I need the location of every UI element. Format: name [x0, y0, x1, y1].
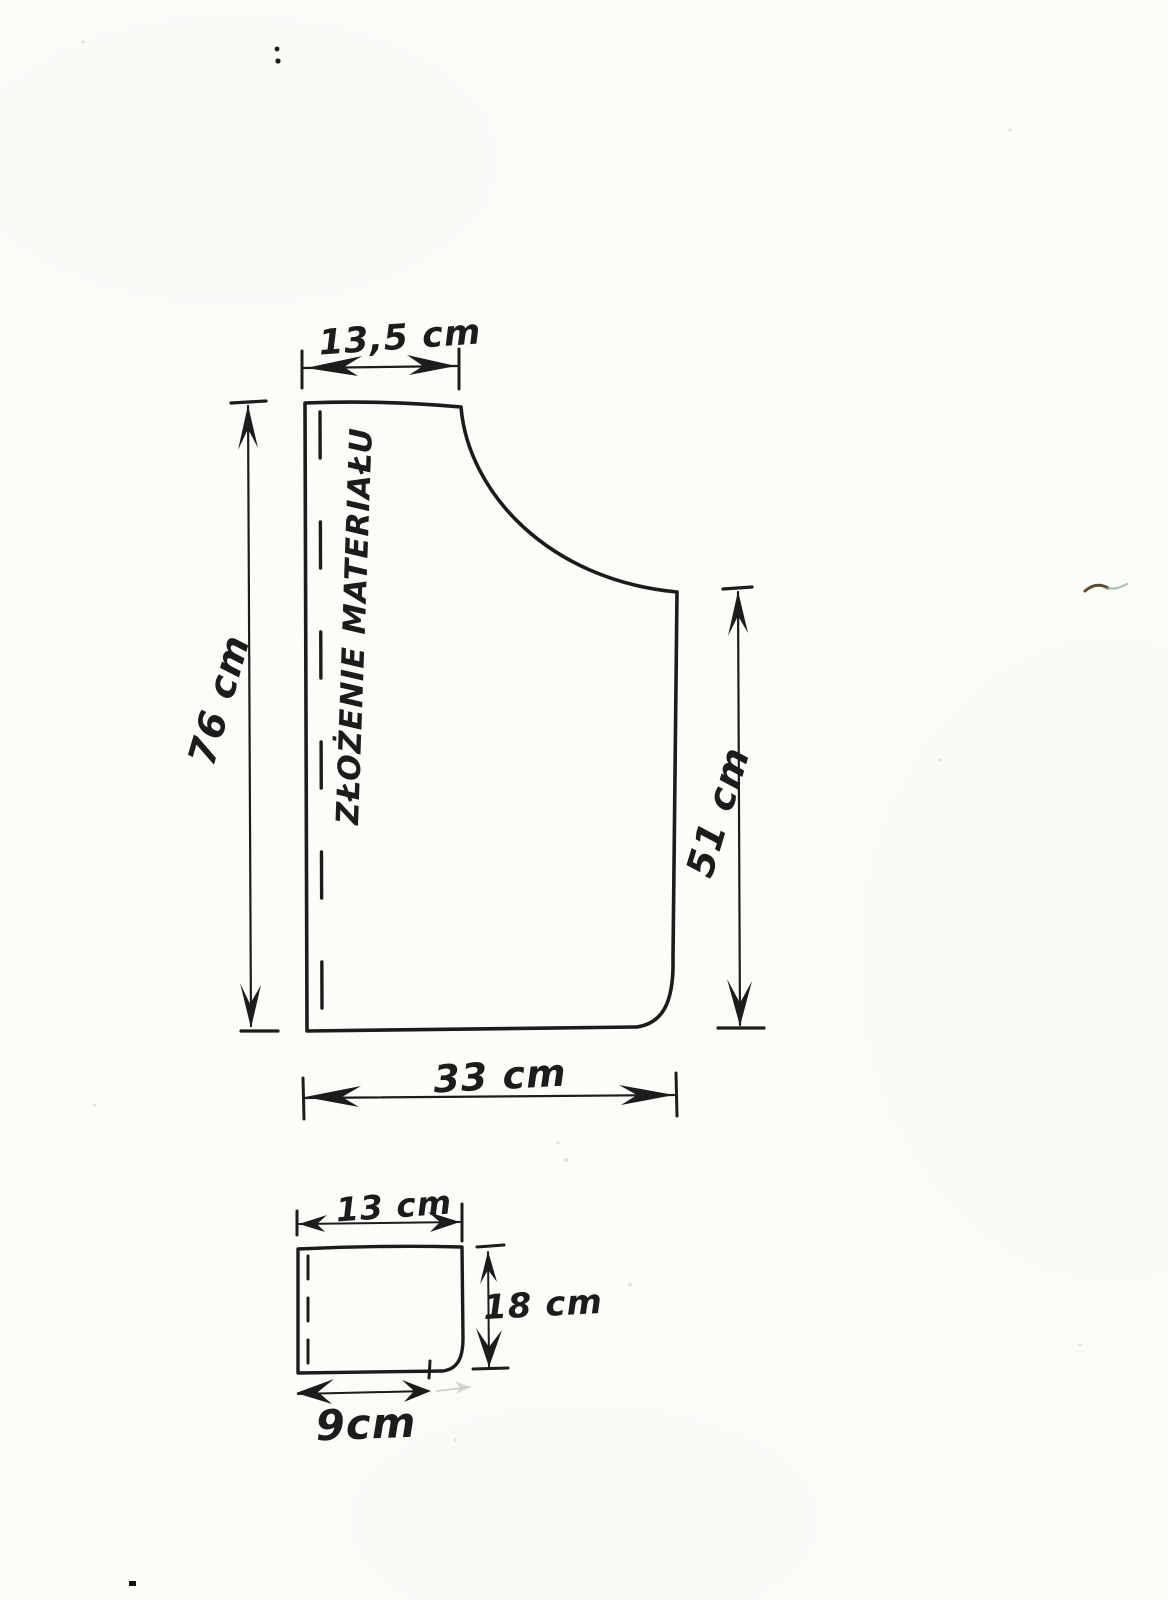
dim-arrow-main-left-height [231, 401, 278, 1031]
scanned-pattern-page: ZŁOŻENIE MATERIAŁU 13,5 cm 76 cm 51 cm 3… [0, 0, 1168, 1600]
dim-label-pocket-top-width: 13 cm [335, 1182, 454, 1229]
pocket-bottom-notch-tick [429, 1361, 430, 1378]
scan-smudge [1085, 584, 1127, 591]
dim-label-pocket-bottom-width: 9cm [315, 1398, 418, 1450]
dim-label-pocket-right-height: 18 cm [482, 1282, 604, 1328]
pocket-piece-outline [298, 1246, 463, 1373]
stray-ink-marks [129, 47, 281, 1586]
dim-label-main-bottom-width: 33 cm [432, 1051, 567, 1102]
main-piece-fold-line [320, 412, 322, 1008]
paper-specks [81, 40, 1081, 1441]
pattern-drawing [0, 0, 1168, 1600]
